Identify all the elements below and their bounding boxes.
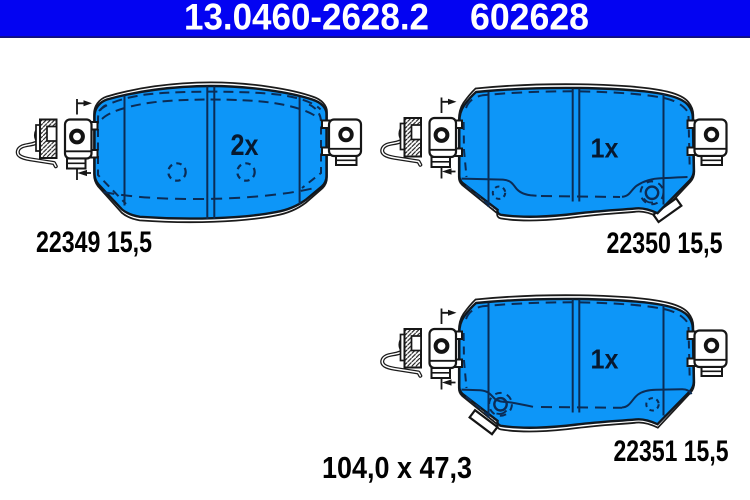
svg-text:13.0460-2628.2: 13.0460-2628.2 xyxy=(184,0,429,38)
svg-text:2x: 2x xyxy=(231,129,259,162)
svg-text:1x: 1x xyxy=(591,344,620,375)
svg-text:22350 15,5: 22350 15,5 xyxy=(607,227,723,260)
svg-text:22349 15,5: 22349 15,5 xyxy=(36,226,152,259)
svg-text:22351 15,5: 22351 15,5 xyxy=(614,435,729,468)
svg-text:602628: 602628 xyxy=(470,0,589,38)
svg-text:1x: 1x xyxy=(591,133,620,164)
svg-text:104,0 x 47,3: 104,0 x 47,3 xyxy=(322,451,472,485)
